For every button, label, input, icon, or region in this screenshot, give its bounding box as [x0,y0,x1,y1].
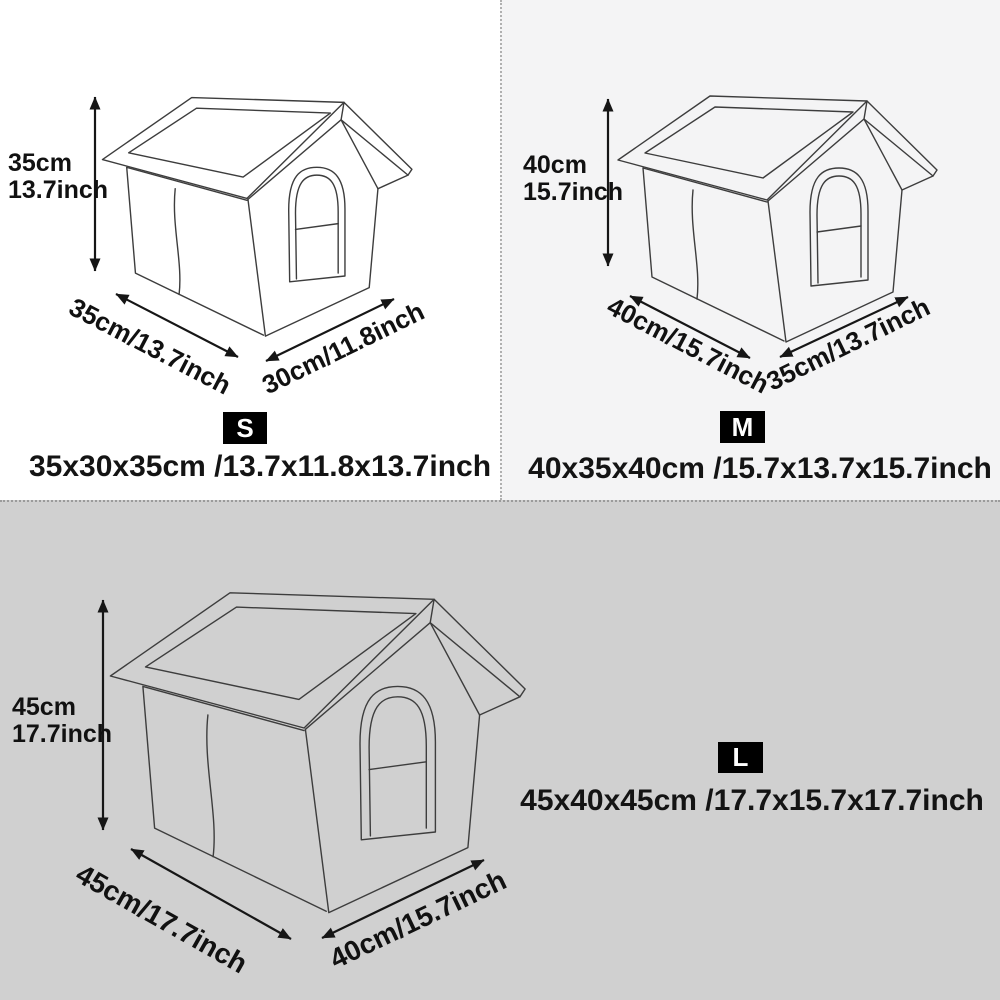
height-label-cm: 40cm [523,152,623,179]
height-label-cm: 35cm [8,150,108,177]
size-panel-m: 40cm/15.7inch 35cm/13.7inch 40cm 15.7inc… [500,0,1000,500]
size-badge: M [720,411,765,443]
height-label-cm: 45cm [12,694,112,721]
size-summary: 40x35x40cm /15.7x13.7x15.7inch [510,452,1000,486]
height-label-inch: 15.7inch [523,179,623,206]
vertical-divider [500,0,502,500]
house-drawing [102,98,411,337]
width-arrow-label: 35cm/13.7inch [64,292,236,401]
depth-arrow-label: 35cm/13.7inch [762,291,935,396]
height-label-inch: 17.7inch [12,721,112,748]
size-diagram-l: 45cm/17.7inch 40cm/15.7inch [0,500,1000,1000]
width-arrow-label: 40cm/15.7inch [602,291,774,400]
height-label: 40cm 15.7inch [523,152,623,206]
house-drawing [110,593,525,913]
size-chart-infographic: { "colors": { "panel_s_bg": "#ffffff", "… [0,0,1000,1000]
size-summary: 45x40x45cm /17.7x15.7x17.7inch [502,784,1000,818]
height-label-inch: 13.7inch [8,177,108,204]
size-panel-l: 45cm/17.7inch 40cm/15.7inch 45cm 17.7inc… [0,500,1000,1000]
size-summary: 35x30x35cm /13.7x11.8x13.7inch [10,450,510,484]
depth-arrow-label: 40cm/15.7inch [325,864,511,974]
size-panel-s: 35cm/13.7inch 30cm/11.8inch 35cm 13.7inc… [0,0,500,500]
depth-arrow-label: 30cm/11.8inch [257,296,429,400]
horizontal-divider [0,500,1000,502]
size-badge: S [223,412,267,444]
width-arrow-label: 45cm/17.7inch [71,858,253,979]
height-label: 45cm 17.7inch [12,694,112,748]
size-badge: L [718,742,763,773]
height-label: 35cm 13.7inch [8,150,108,204]
